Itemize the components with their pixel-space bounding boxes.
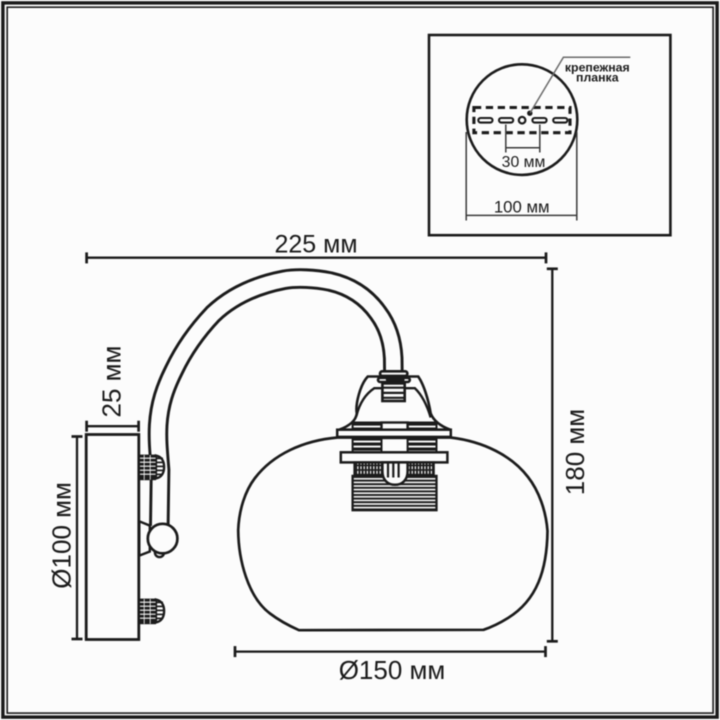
svg-text:100 мм: 100 мм — [494, 198, 550, 217]
svg-text:Ø150 мм: Ø150 мм — [339, 655, 446, 685]
svg-text:Ø100 мм: Ø100 мм — [47, 482, 77, 589]
svg-text:планка: планка — [576, 70, 619, 84]
svg-text:25 мм: 25 мм — [97, 346, 127, 418]
svg-text:225 мм: 225 мм — [274, 230, 357, 258]
svg-text:180 мм: 180 мм — [560, 409, 590, 495]
svg-text:30 мм: 30 мм — [502, 154, 546, 171]
